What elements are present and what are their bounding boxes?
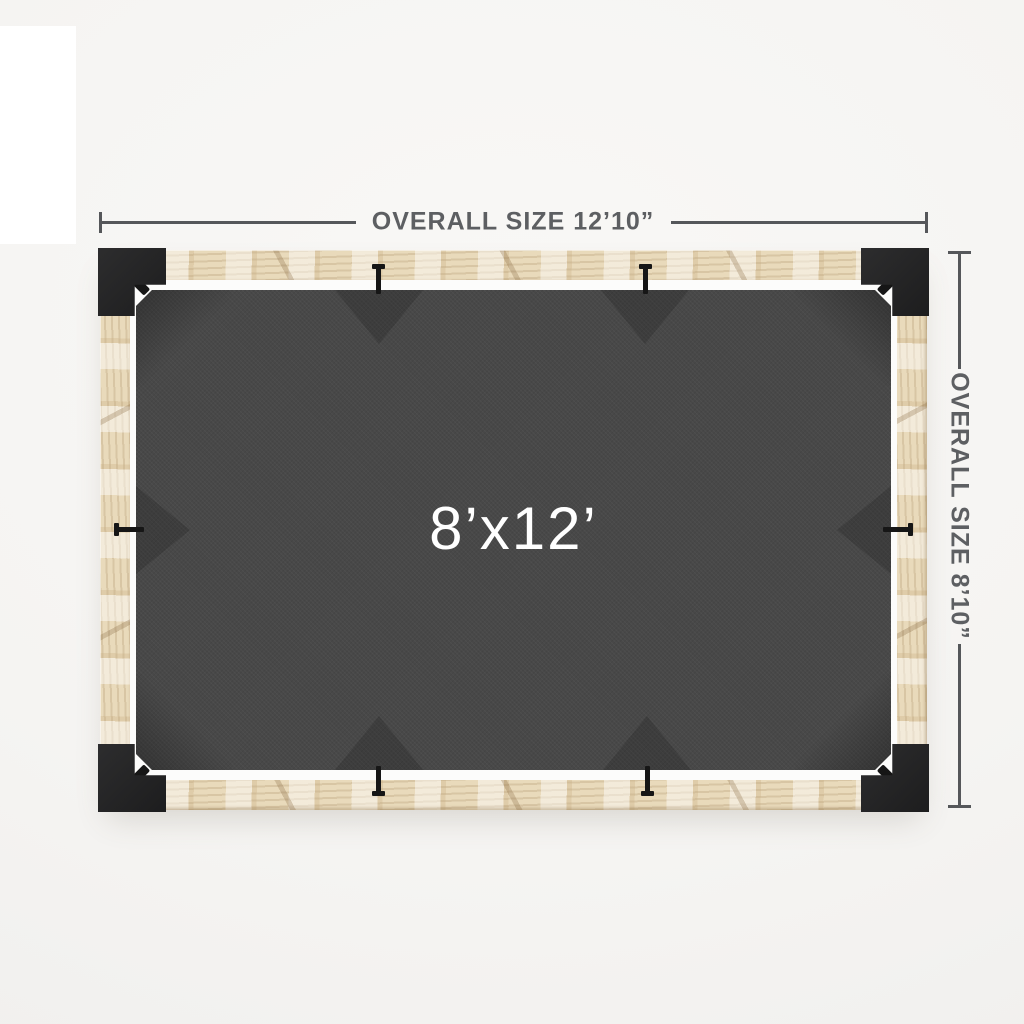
horizontal-dimension-label: OVERALL SIZE 12’10”: [372, 208, 655, 237]
sail-pucker: [601, 290, 689, 344]
sail-corner-shade: [136, 290, 232, 386]
vertical-dimension-tick-top: [948, 251, 971, 254]
sail-pucker: [603, 716, 691, 770]
horizontal-dimension-tick-left: [99, 212, 102, 233]
attachment-tab-right-pin: [883, 527, 911, 532]
white-corner-patch: [0, 26, 76, 244]
attachment-tab-bottom-1-foot: [372, 791, 385, 796]
attachment-tab-bottom-2-foot: [641, 791, 654, 796]
sail-corner-shade: [795, 290, 891, 386]
sail-corner-shade: [136, 674, 232, 770]
vertical-dimension-tick-bottom: [948, 805, 971, 808]
wood-beam-bottom: [100, 777, 927, 810]
attachment-tab-left-pin: [116, 527, 144, 532]
vertical-dimension-line-bottom: [958, 644, 961, 808]
attachment-tab-top-2-foot: [639, 264, 652, 269]
pergola-frame: 8’x12’: [100, 250, 927, 810]
attachment-tab-bottom-1-pin: [376, 766, 381, 794]
vertical-dimension-line-top: [958, 253, 961, 369]
attachment-tab-top-1-foot: [372, 264, 385, 269]
attachment-tab-bottom-2-pin: [645, 766, 650, 794]
horizontal-dimension-line-right: [671, 221, 927, 224]
sail-pucker: [335, 290, 423, 344]
vertical-dimension-label: OVERALL SIZE 8’10”: [945, 372, 974, 640]
attachment-tab-right-foot: [908, 523, 913, 536]
wood-beam-top: [100, 250, 927, 283]
shade-sail-canopy: 8’x12’: [136, 290, 891, 770]
attachment-tab-top-1-pin: [376, 266, 381, 294]
horizontal-dimension-line-left: [100, 221, 356, 224]
sail-corner-shade: [795, 674, 891, 770]
horizontal-dimension-tick-right: [925, 212, 928, 233]
canopy-size-label: 8’x12’: [429, 494, 598, 563]
attachment-tab-top-2-pin: [643, 266, 648, 294]
attachment-tab-left-foot: [114, 523, 119, 536]
sail-pucker: [335, 716, 423, 770]
sail-pucker: [136, 486, 190, 574]
product-diagram: OVERALL SIZE 12’10” OVERALL SIZE 8’10” 8…: [0, 0, 1024, 1024]
